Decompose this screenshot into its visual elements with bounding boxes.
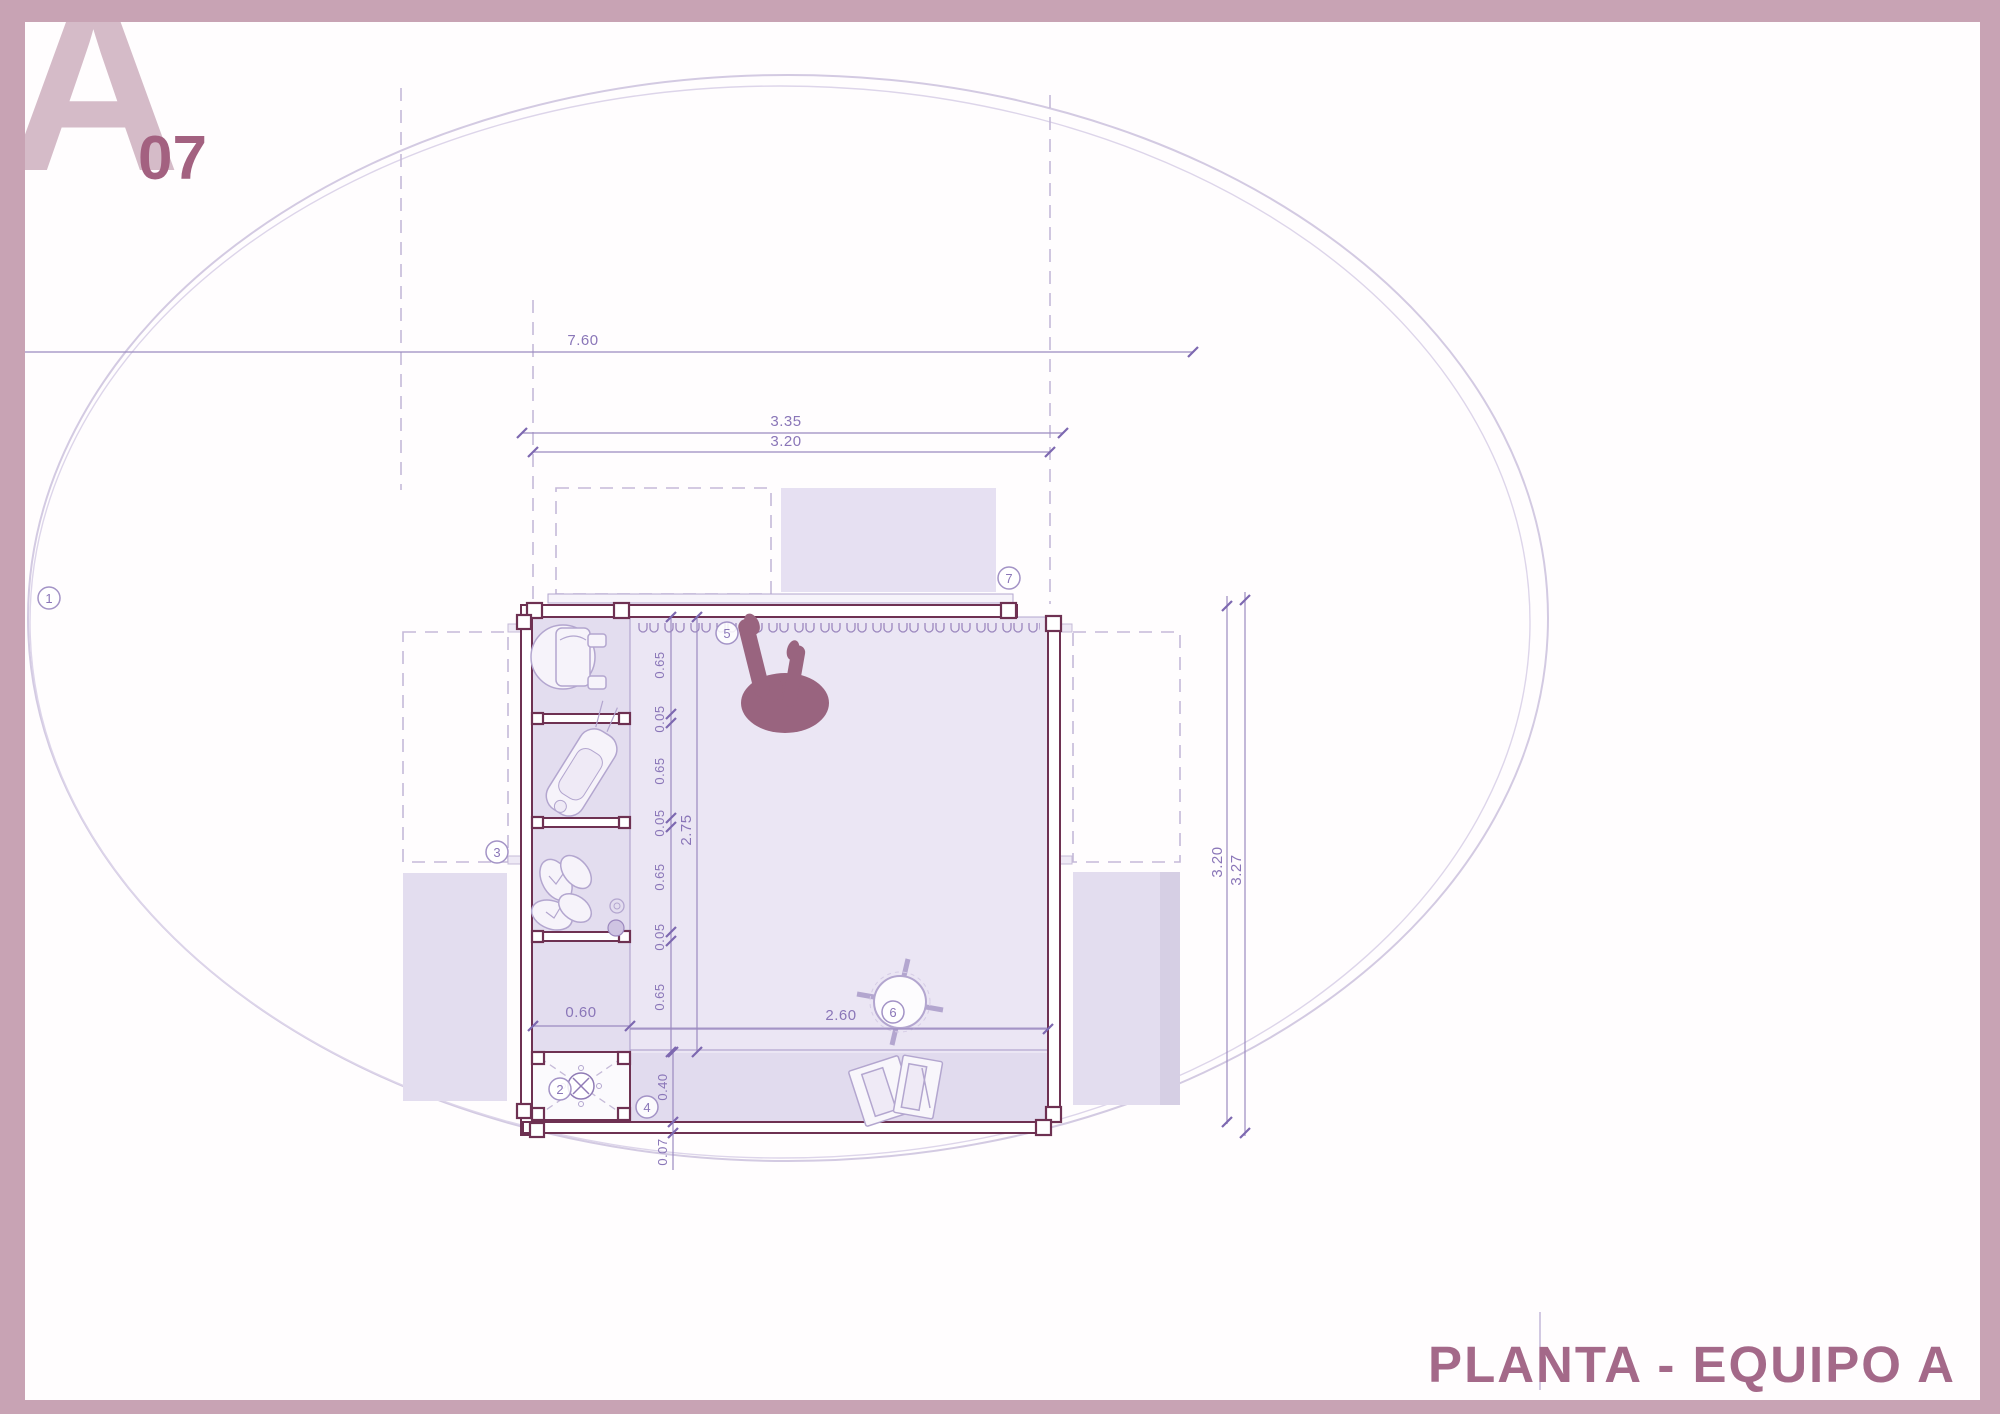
terrace-right-edge xyxy=(1160,872,1180,1105)
sheet-title: PLANTA - EQUIPO A xyxy=(1428,1335,1956,1394)
marker-6: 6 xyxy=(882,1001,904,1023)
svg-text:2: 2 xyxy=(556,1082,563,1097)
dim-upper-outer: 3.35 xyxy=(770,413,801,430)
dim-upper-inner: 3.20 xyxy=(770,433,801,450)
dim-right-inner: 3.20 xyxy=(1209,846,1226,877)
upper-cabinet-fill xyxy=(781,488,996,592)
dim-right-outer: 3.27 xyxy=(1228,854,1245,885)
dim-chain-6: 0.05 xyxy=(652,923,667,950)
floor-plan-drawing: 7.60 3.35 3.20 3.20 3.27 0.65 0.05 0.65 … xyxy=(0,0,2000,1414)
marker-2: 2 xyxy=(549,1078,571,1100)
marker-1: 1 xyxy=(38,587,60,609)
dim-closet-width: 0.60 xyxy=(565,1004,596,1021)
main-room-fill xyxy=(630,617,1048,1122)
dim-chain-3: 0.65 xyxy=(652,757,667,784)
dim-chain-2: 0.05 xyxy=(652,705,667,732)
marker-7: 7 xyxy=(998,567,1020,589)
marker-5: 5 xyxy=(716,622,738,644)
terrace-left-fill xyxy=(403,873,507,1101)
floor-drain xyxy=(608,920,624,936)
dim-chain-1: 0.65 xyxy=(652,651,667,678)
dim-room-depth: 2.75 xyxy=(678,814,695,845)
marker-3: 3 xyxy=(486,841,508,863)
dim-chain-4: 0.05 xyxy=(652,809,667,836)
svg-text:4: 4 xyxy=(643,1100,650,1115)
svg-text:3: 3 xyxy=(493,845,500,860)
marker-4: 4 xyxy=(636,1096,658,1118)
svg-text:1: 1 xyxy=(45,591,52,606)
dim-chain-5: 0.65 xyxy=(652,863,667,890)
plan-sheet: 7.60 3.35 3.20 3.20 3.27 0.65 0.05 0.65 … xyxy=(0,0,2000,1414)
dim-room-width: 2.60 xyxy=(825,1007,856,1024)
cabinet-baseboard xyxy=(548,594,1013,603)
svg-text:5: 5 xyxy=(723,626,730,641)
dim-bottom-strip: 0.40 xyxy=(655,1073,670,1100)
adjacent-module-left-dashed xyxy=(403,632,508,862)
upper-cabinet-dashed xyxy=(556,488,771,594)
dim-wall-thickness: 0.07 xyxy=(655,1138,670,1165)
bottom-strip-fill xyxy=(630,1053,1048,1122)
svg-text:6: 6 xyxy=(889,1005,896,1020)
dim-total-width: 7.60 xyxy=(567,332,598,349)
shower xyxy=(532,1052,630,1120)
dim-chain-7: 0.65 xyxy=(652,983,667,1010)
adjacent-module-right-dashed xyxy=(1073,632,1180,862)
logo-number: 07 xyxy=(138,128,207,190)
armchair xyxy=(531,625,606,689)
sheet-logo: A 07 xyxy=(6,0,175,208)
svg-text:7: 7 xyxy=(1005,571,1012,586)
